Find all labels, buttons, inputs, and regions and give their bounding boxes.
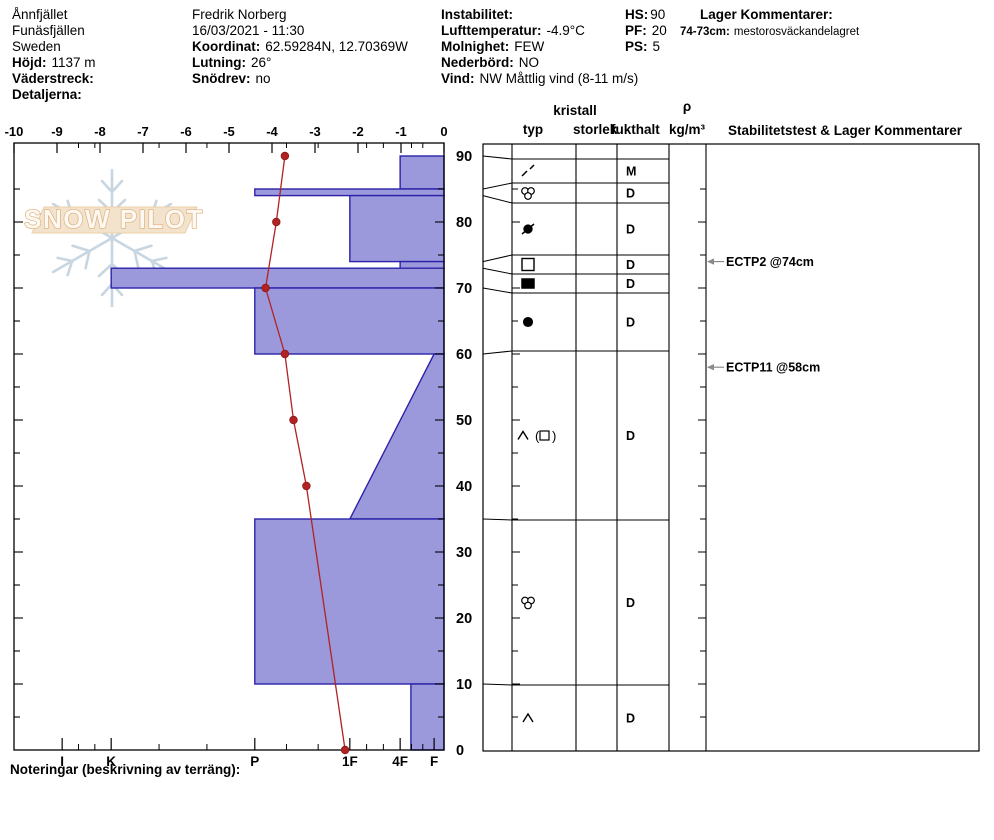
depth-axis-label: 0	[456, 743, 464, 759]
depth-axis-label: 60	[456, 347, 472, 363]
depth-axis-label: 40	[456, 479, 472, 495]
crystal-glyph-part	[522, 279, 534, 288]
table-depth-connector	[483, 183, 512, 189]
table-depth-connector	[483, 196, 512, 203]
moisture-value: D	[626, 712, 635, 726]
crystal-type-icon-depth-hoar-facets: ()	[518, 429, 556, 444]
temp-axis-tick-label: -1	[395, 124, 407, 139]
moisture-value: M	[626, 165, 636, 179]
temperature-point	[281, 152, 289, 160]
hardness-axis-tick-label: 1F	[342, 754, 358, 769]
snow-layer-bar	[255, 189, 444, 196]
depth-axis-label: 80	[456, 215, 472, 231]
table-depth-connector	[483, 519, 512, 520]
crystal-glyph-part	[525, 193, 532, 200]
snow-layer-bar	[255, 519, 444, 684]
table-depth-connector	[483, 351, 512, 354]
crystal-glyph-part	[518, 432, 528, 440]
temp-axis-tick-label: -5	[223, 124, 235, 139]
crystal-glyph-part	[523, 714, 533, 722]
depth-axis-label: 10	[456, 677, 472, 693]
moisture-value: D	[626, 277, 635, 291]
crystal-glyph-part	[540, 431, 549, 440]
snow-layer-bar	[255, 288, 444, 354]
crystal-glyph-part	[524, 318, 533, 327]
snow-layer-wedge	[350, 354, 444, 519]
watermark-text: SNOW PILOT	[24, 204, 204, 234]
depth-axis-label: 50	[456, 413, 472, 429]
crystal-glyph-part: )	[552, 429, 556, 444]
depth-axis-label: 30	[456, 545, 472, 561]
temperature-point	[273, 218, 281, 226]
hardness-axis-tick-label: P	[250, 754, 259, 769]
table-depth-connector	[483, 255, 512, 262]
crystal-glyph-part: (	[535, 429, 540, 444]
table-depth-connector	[483, 268, 512, 274]
crystal-glyph-part	[522, 171, 527, 176]
snow-profile-chart: SNOW PILOT-10-9-8-7-6-5-4-3-2-10IKP1F4FF…	[0, 0, 994, 840]
temp-axis-tick-label: -2	[352, 124, 364, 139]
stability-test-annotation: ECTP11 @58cm	[726, 361, 820, 375]
stability-test-annotation: ECTP2 @74cm	[726, 255, 814, 269]
layer-table-border	[483, 144, 979, 751]
hardness-axis-tick-label: F	[430, 754, 438, 769]
crystal-glyph-part	[522, 259, 534, 271]
stability-arrow-head	[707, 258, 714, 264]
crystal-type-icon-decomposing	[522, 165, 534, 176]
temperature-point	[290, 416, 298, 424]
notes-label: Noteringar (beskrivning av terräng):	[10, 762, 240, 777]
crystal-type-icon-ice	[522, 279, 534, 288]
crystal-type-icon-rounds-slash	[522, 224, 534, 234]
temp-axis-tick-label: -9	[51, 124, 63, 139]
crystal-type-icon-graupel	[522, 188, 535, 200]
temp-axis-tick-label: -8	[94, 124, 106, 139]
temperature-point	[281, 350, 289, 358]
snow-layer-bar	[350, 196, 444, 262]
temp-axis-tick-label: -7	[137, 124, 149, 139]
depth-axis-label: 90	[456, 149, 472, 165]
stability-arrow-head	[707, 364, 714, 370]
crystal-glyph-part	[525, 602, 532, 609]
moisture-value: D	[626, 316, 635, 330]
crystal-glyph-part	[530, 165, 534, 169]
moisture-value: D	[626, 223, 635, 237]
temp-axis-tick-label: -6	[180, 124, 192, 139]
temp-axis-tick-label: -4	[266, 124, 278, 139]
depth-axis-label: 70	[456, 281, 472, 297]
temp-axis-tick-label: 0	[440, 124, 447, 139]
depth-axis-label: 20	[456, 611, 472, 627]
moisture-value: D	[626, 258, 635, 272]
table-depth-connector	[483, 288, 512, 293]
snow-layer-bar	[111, 268, 444, 288]
temperature-point	[262, 284, 270, 292]
moisture-value: D	[626, 187, 635, 201]
crystal-type-icon-graupel	[522, 597, 535, 609]
crystal-type-icon-facets	[522, 259, 534, 271]
temperature-point	[303, 482, 311, 490]
moisture-value: D	[626, 429, 635, 443]
crystal-type-icon-rounds	[524, 318, 533, 327]
snow-layer-bar	[400, 156, 444, 189]
temperature-point	[341, 746, 349, 754]
table-depth-connector	[483, 684, 512, 685]
hardness-axis-tick-label: 4F	[392, 754, 408, 769]
temp-axis-tick-label: -10	[5, 124, 24, 139]
crystal-type-icon-depth-hoar	[523, 714, 533, 722]
moisture-value: D	[626, 596, 635, 610]
table-depth-connector	[483, 156, 512, 159]
snow-layer-bar	[400, 262, 444, 269]
temp-axis-tick-label: -3	[309, 124, 321, 139]
